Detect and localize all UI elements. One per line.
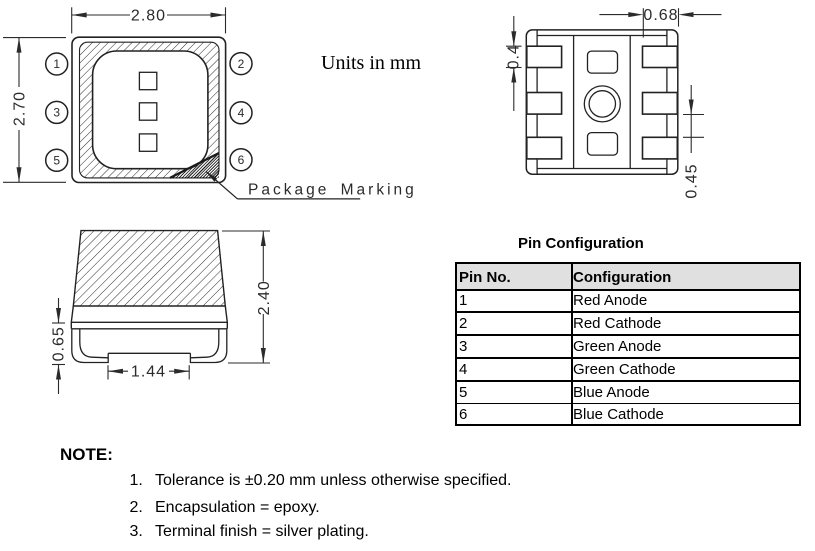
- svg-text:2.70: 2.70: [12, 91, 29, 126]
- svg-text:0.45: 0.45: [684, 163, 701, 198]
- svg-text:0.4: 0.4: [506, 44, 523, 69]
- svg-text:6: 6: [238, 153, 245, 167]
- svg-text:4: 4: [238, 106, 245, 120]
- svg-text:Package Marking: Package Marking: [248, 182, 417, 199]
- svg-text:5: 5: [53, 154, 60, 168]
- svg-text:0.65: 0.65: [51, 326, 68, 361]
- svg-text:2: 2: [238, 57, 245, 71]
- svg-text:2.40: 2.40: [256, 280, 273, 315]
- svg-text:0.68: 0.68: [643, 7, 678, 24]
- svg-text:1: 1: [53, 57, 60, 71]
- svg-text:2.80: 2.80: [131, 8, 166, 25]
- svg-text:1.44: 1.44: [131, 364, 166, 381]
- svg-text:3: 3: [53, 106, 60, 120]
